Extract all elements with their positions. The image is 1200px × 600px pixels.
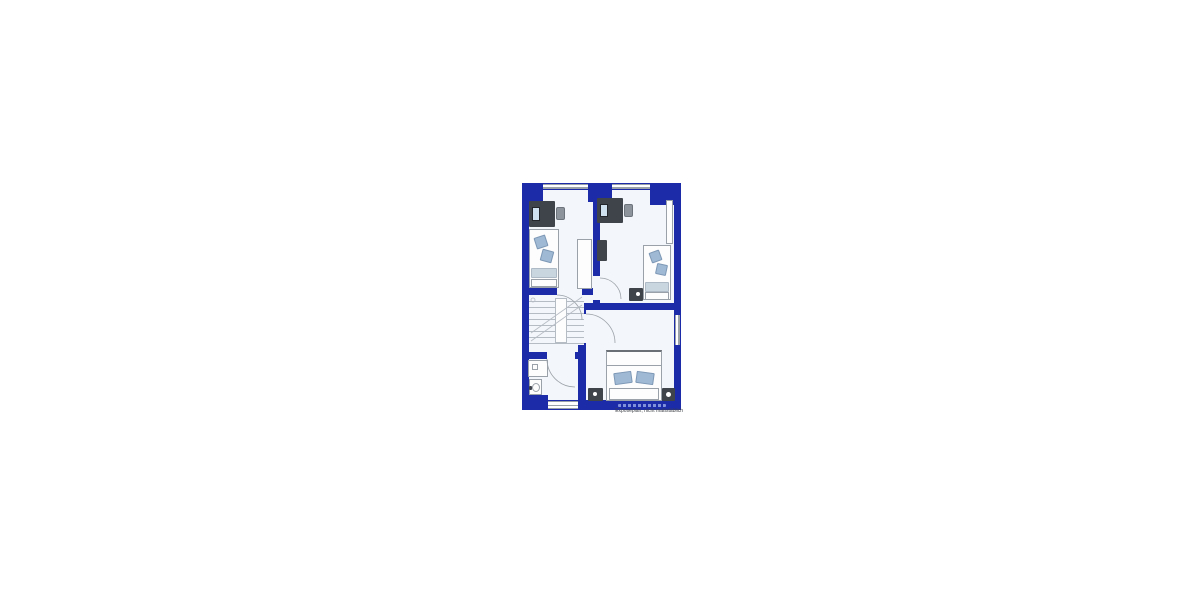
wall-room1-bottom	[522, 288, 557, 295]
cushion-icon	[655, 263, 668, 276]
stairs-center-stringer	[555, 298, 567, 343]
window-icon	[612, 184, 650, 189]
floor-plan	[522, 183, 681, 410]
wardrobe-icon	[666, 200, 673, 244]
wall-right	[674, 183, 681, 410]
office-chair-icon	[624, 204, 633, 217]
lamp-icon	[666, 392, 671, 397]
plan-caption: Exposéplan, nicht maßstäblich	[522, 408, 683, 415]
nightstand-icon	[629, 288, 643, 301]
wall-watermark	[618, 404, 666, 407]
desk-icon	[529, 201, 555, 227]
monitor-icon	[600, 204, 608, 217]
pillow-icon	[531, 268, 557, 278]
lamp-icon	[593, 392, 597, 396]
monitor-icon	[532, 207, 540, 221]
door-opening-bathroom	[547, 352, 575, 359]
wall-bedroom-top	[578, 303, 681, 310]
office-chair-icon	[556, 207, 565, 220]
cushion-icon	[533, 234, 548, 249]
window-icon	[543, 184, 588, 189]
single-bed-icon	[643, 245, 671, 300]
bed-footboard	[531, 279, 557, 287]
pillow-icon	[645, 282, 669, 292]
dresser-icon	[597, 240, 607, 261]
wall-room1-bottom-stub	[582, 288, 593, 295]
shower-drain	[532, 364, 538, 370]
cushion-icon	[648, 249, 662, 263]
window-icon	[675, 315, 680, 345]
lamp-icon	[636, 292, 640, 296]
wardrobe-icon	[577, 239, 592, 289]
cushion-icon	[540, 249, 555, 264]
basin-bowl	[532, 383, 540, 392]
desk-icon	[597, 198, 623, 223]
shower-icon	[528, 360, 548, 377]
nightstand-icon	[662, 388, 675, 401]
washbasin-icon	[529, 379, 542, 395]
double-bed-icon	[606, 350, 662, 401]
faucet-icon	[529, 386, 532, 390]
pillow-icon	[613, 371, 632, 385]
nightstand-icon	[588, 388, 603, 401]
bed-footboard	[645, 292, 669, 300]
door-opening-room2	[593, 276, 600, 300]
headboard	[609, 388, 659, 400]
single-bed-icon	[529, 229, 559, 288]
pillow-icon	[635, 371, 654, 385]
wall-pier-top-left	[522, 183, 543, 202]
duvet-fold-line	[607, 365, 661, 366]
